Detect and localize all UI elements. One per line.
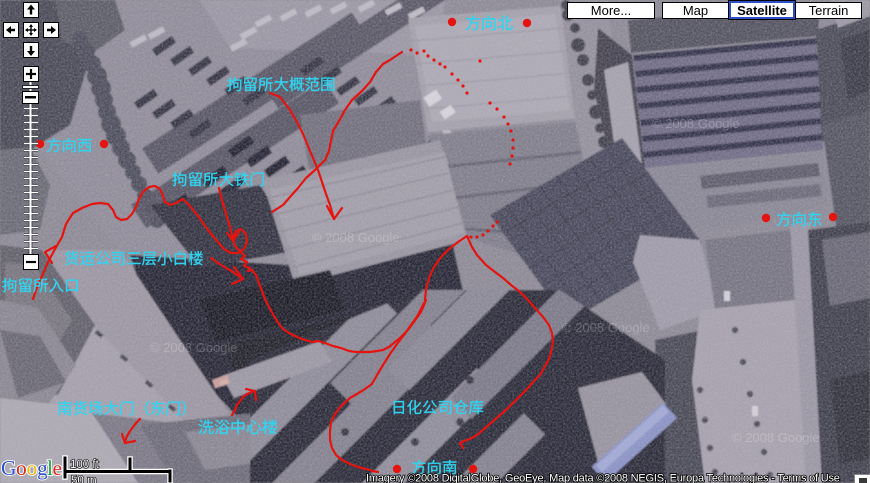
svg-text:o: o (27, 456, 38, 480)
svg-text:Imagery ©2008 DigitalGlobe, Ge: Imagery ©2008 DigitalGlobe, GeoEye, Map … (366, 473, 840, 483)
svg-text:G: G (1, 456, 17, 480)
svg-text:o: o (16, 456, 27, 480)
svg-text:100 ft: 100 ft (70, 459, 100, 471)
svg-text:50 m: 50 m (71, 475, 97, 483)
